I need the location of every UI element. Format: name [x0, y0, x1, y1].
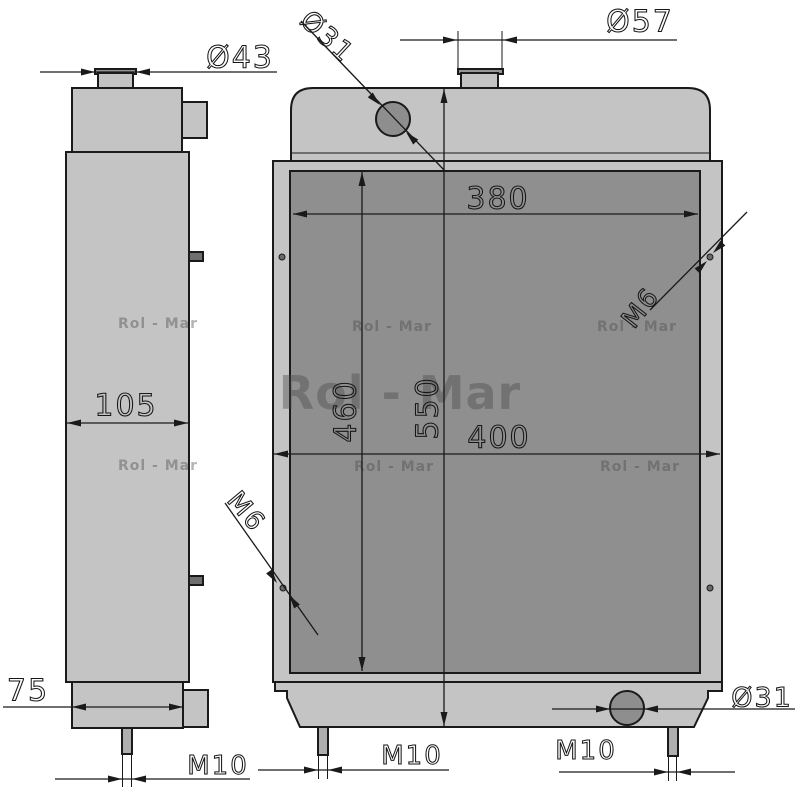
m6-hole-top-left: [279, 254, 285, 260]
dim-label-side-bottom-depth: 75: [7, 674, 49, 709]
watermark-small: Rol - Mar: [118, 458, 198, 474]
dim-label-front-stud-left: M10: [381, 741, 443, 771]
dim-front-stud-left: M10: [258, 741, 449, 779]
dim-label-core-height: 460: [329, 379, 364, 442]
dim-side-stud: M10: [55, 751, 250, 787]
m6-hole-top-right: [707, 254, 713, 260]
front-outlet-port: [610, 691, 644, 725]
dim-label-overall-height: 550: [411, 376, 446, 439]
dim-label-side-depth: 105: [94, 389, 157, 424]
watermark-small: Rol - Mar: [600, 459, 680, 475]
dim-label-core-width: 380: [466, 182, 529, 217]
watermark-small: Rol - Mar: [354, 459, 434, 475]
front-mount-stud-left: [318, 727, 328, 755]
dim-label-side-filler-neck: Ø43: [206, 41, 274, 76]
front-inlet-port: [376, 102, 410, 136]
dim-side-filler-neck: Ø43: [40, 41, 277, 76]
dim-label-overall-width: 400: [467, 421, 530, 456]
side-bottom-tab: [183, 690, 208, 727]
side-top-tab: [182, 102, 207, 138]
dim-label-bottom-outlet: Ø31: [731, 683, 793, 714]
watermark-large: Rol - Mar: [279, 366, 521, 420]
dim-front-stud-right: M10: [555, 736, 735, 781]
side-bottom-tank: [72, 682, 183, 728]
front-top-tank: [291, 88, 710, 161]
dim-label-filler-neck: Ø57: [606, 5, 674, 40]
dim-label-top-inlet: Ø31: [294, 5, 360, 70]
dim-label-front-stud-right: M10: [555, 736, 617, 766]
technical-drawing-canvas: Rol - Mar Rol - Mar Rol - Mar Rol - Mar …: [0, 0, 800, 789]
m6-hole-bottom-right: [707, 585, 713, 591]
dim-label-side-stud: M10: [187, 751, 249, 781]
front-filler-neck: [461, 73, 498, 89]
radiator-drawing: Rol - Mar Rol - Mar Rol - Mar Rol - Mar …: [0, 0, 800, 789]
front-mount-stud-right: [668, 727, 678, 756]
watermark-small: Rol - Mar: [352, 319, 432, 335]
dim-filler-neck: Ø57: [400, 5, 677, 69]
side-top-tank: [72, 88, 182, 152]
dim-label-thread-hole-left: M6: [221, 486, 272, 538]
front-bottom-tank: [275, 682, 722, 727]
watermark-small: Rol - Mar: [118, 316, 198, 332]
side-mount-stud: [122, 728, 132, 754]
side-filler-neck: [98, 73, 133, 89]
